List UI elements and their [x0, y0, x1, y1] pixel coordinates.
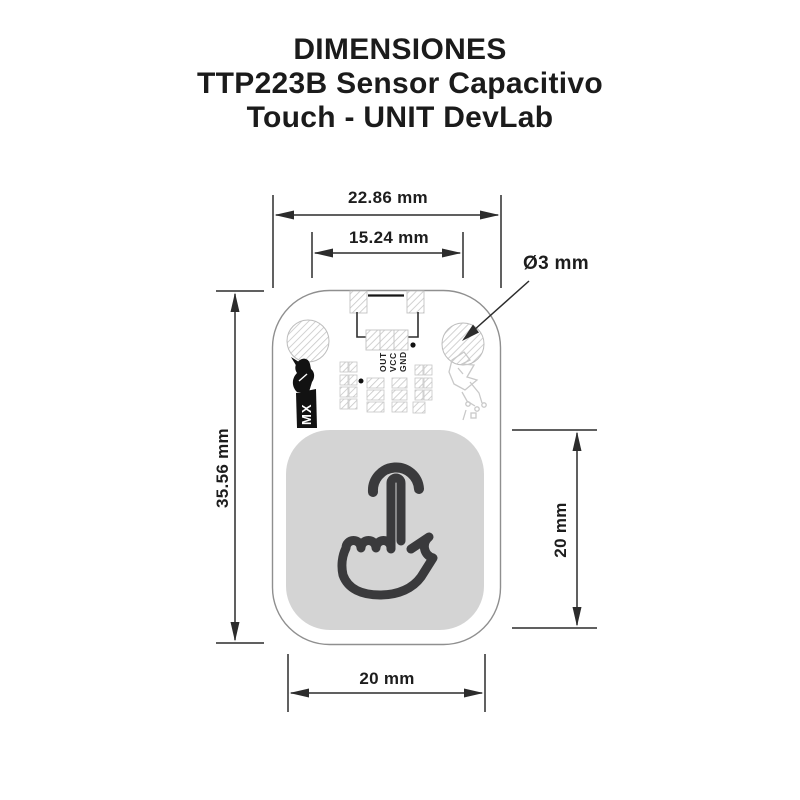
- touch-pad-area: [286, 430, 484, 630]
- pin-label-gnd: GND: [398, 351, 408, 372]
- diagram-canvas: DIMENSIONES TTP223B Sensor Capacitivo To…: [0, 0, 800, 800]
- pin-pad-block: [366, 330, 408, 350]
- mounting-hole-right: [442, 323, 484, 365]
- fiducial-dot-top: [410, 342, 415, 347]
- label-hole-diameter: Ø3 mm: [523, 253, 589, 275]
- pin-label-out: OUT: [378, 352, 388, 372]
- label-board-width: 22.86 mm: [348, 188, 428, 208]
- logo-text: MX: [299, 404, 314, 426]
- mounting-hole-left: [287, 320, 329, 362]
- fiducial-dot-mid: [359, 379, 364, 384]
- pin-labels: OUT VCC GND: [378, 351, 408, 372]
- label-board-height: 35.56 mm: [213, 428, 233, 508]
- label-touch-height: 20 mm: [551, 502, 571, 557]
- pin-label-vcc: VCC: [388, 352, 398, 372]
- label-hole-spacing: 15.24 mm: [349, 228, 429, 248]
- label-touch-width: 20 mm: [359, 669, 414, 689]
